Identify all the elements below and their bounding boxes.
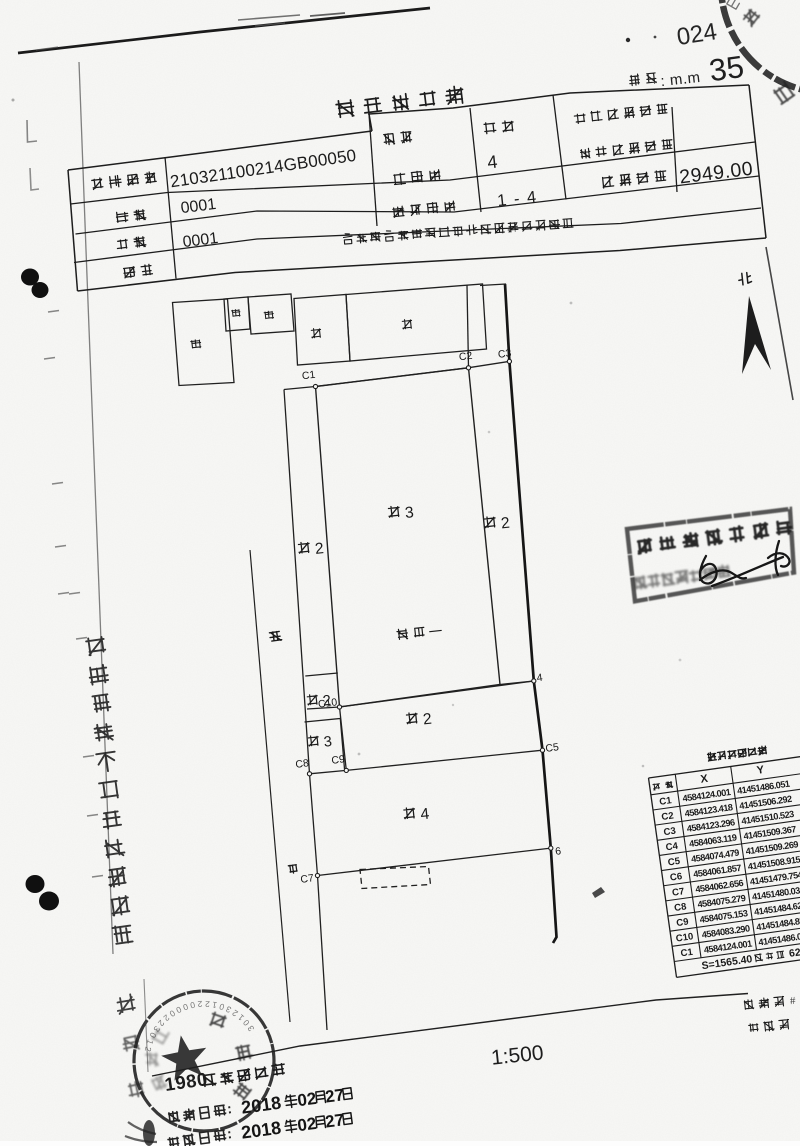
- svg-text:3: 3: [323, 734, 333, 751]
- svg-text:2: 2: [422, 711, 432, 729]
- svg-text:C8: C8: [674, 901, 688, 914]
- svg-text:C10: C10: [317, 696, 338, 710]
- svg-text:C9: C9: [676, 916, 690, 929]
- svg-text:2: 2: [204, 999, 210, 1009]
- svg-text:C3: C3: [663, 826, 677, 839]
- svg-text:C4: C4: [665, 841, 679, 854]
- svg-text:2: 2: [197, 999, 203, 1009]
- svg-text:C2: C2: [458, 350, 473, 364]
- svg-text:C5: C5: [667, 856, 681, 869]
- svg-text:C5: C5: [545, 741, 560, 755]
- svg-text:62.3: 62.3: [788, 945, 800, 960]
- svg-text:C7: C7: [300, 872, 315, 886]
- svg-text:4: 4: [486, 152, 498, 173]
- svg-text:C6: C6: [669, 871, 683, 884]
- svg-text:35: 35: [707, 49, 746, 88]
- svg-text:C3: C3: [497, 347, 512, 361]
- svg-text:C1: C1: [680, 947, 694, 960]
- svg-text:C9: C9: [331, 753, 346, 767]
- svg-text:2: 2: [314, 540, 324, 558]
- svg-text:C2: C2: [661, 810, 675, 823]
- svg-text:C8: C8: [295, 757, 310, 771]
- svg-text:02: 02: [296, 1089, 317, 1110]
- svg-text:02: 02: [296, 1114, 317, 1135]
- svg-text:2: 2: [500, 515, 510, 533]
- svg-text:C1: C1: [301, 369, 316, 383]
- svg-text:C7: C7: [671, 886, 685, 899]
- svg-text:C1: C1: [659, 795, 673, 808]
